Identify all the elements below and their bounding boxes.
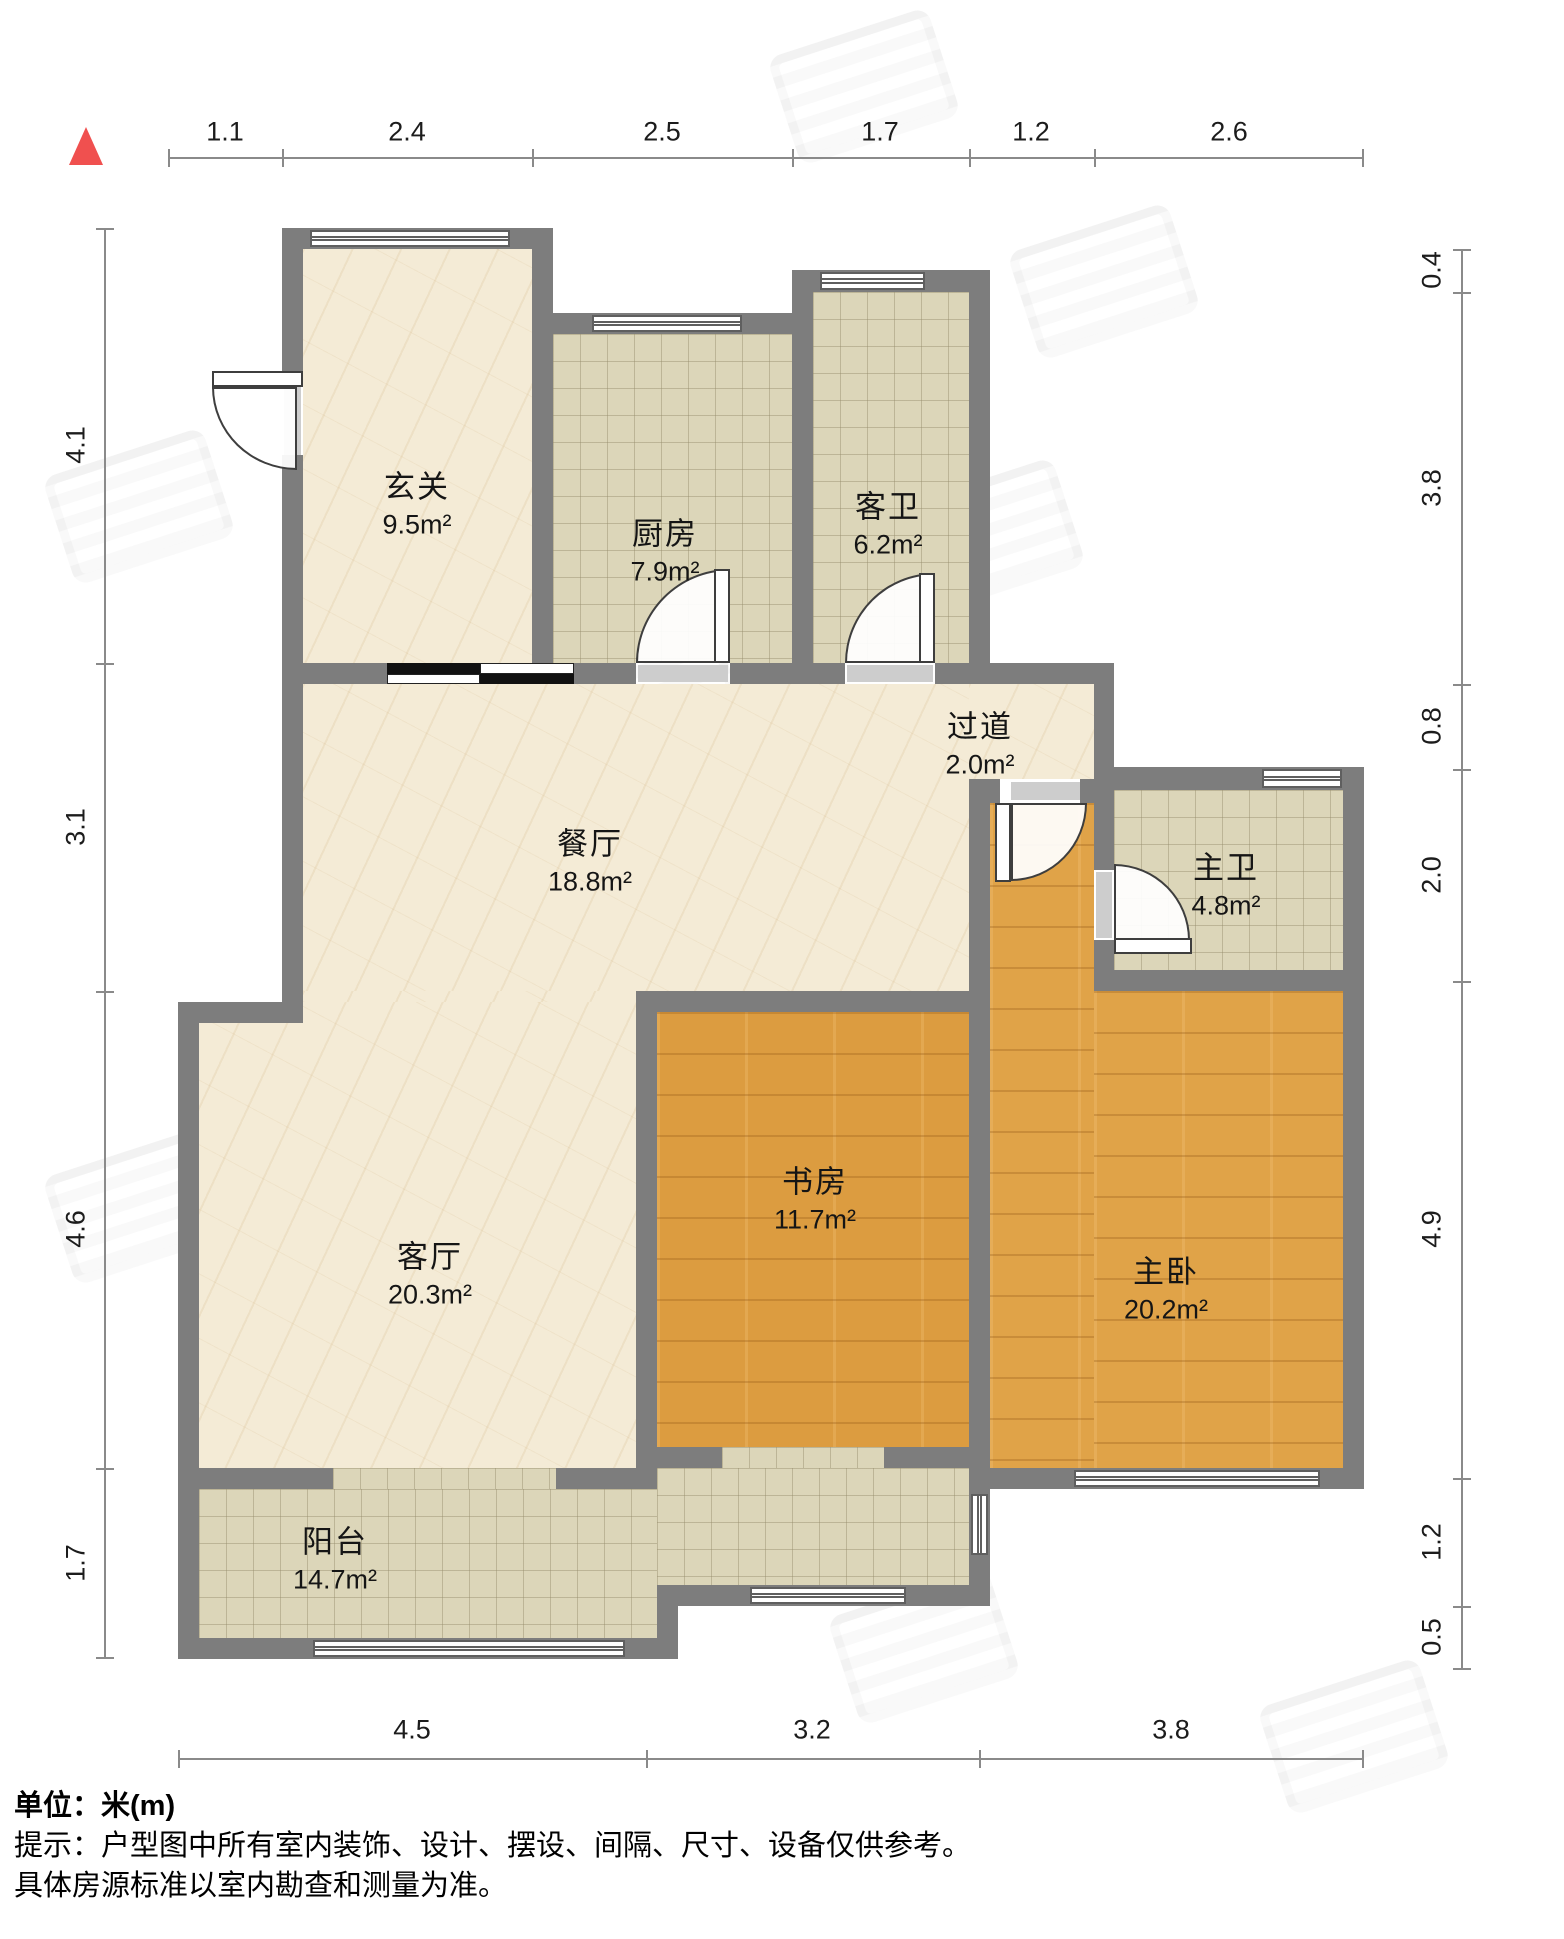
room-name: 主卫 bbox=[1191, 848, 1260, 888]
dim-tick bbox=[1362, 1750, 1364, 1768]
floor-dining bbox=[303, 684, 969, 991]
dim-tick bbox=[646, 1750, 648, 1768]
wall bbox=[532, 228, 553, 663]
room-area: 6.2m² bbox=[853, 528, 922, 563]
room-label-guest-bath: 客卫 6.2m² bbox=[853, 487, 922, 562]
dim-line-bottom bbox=[178, 1758, 1364, 1760]
floor-entrance bbox=[303, 249, 532, 663]
sliding-door-icon bbox=[387, 674, 480, 684]
dim-tick bbox=[1453, 769, 1471, 771]
watermark bbox=[1257, 1657, 1452, 1816]
door-threshold bbox=[638, 665, 728, 682]
entry-door-swing-icon bbox=[212, 387, 297, 470]
dim-label-top: 1.1 bbox=[206, 117, 244, 148]
wall bbox=[935, 663, 1114, 684]
watermark bbox=[1007, 202, 1202, 361]
kitchen-door-leaf bbox=[714, 569, 730, 663]
dim-label-left: 1.7 bbox=[61, 1544, 92, 1582]
room-area: 11.7m² bbox=[774, 1203, 856, 1238]
floor-balcony-extension bbox=[722, 1447, 884, 1468]
room-name: 厨房 bbox=[630, 514, 699, 554]
wall bbox=[1343, 767, 1364, 1489]
room-area: 18.8m² bbox=[548, 865, 632, 900]
wall bbox=[282, 228, 303, 385]
dim-label-left: 4.1 bbox=[61, 426, 92, 464]
sliding-door-icon bbox=[387, 663, 480, 674]
room-name: 过道 bbox=[945, 707, 1014, 747]
room-label-master-bedroom: 主卧 20.2m² bbox=[1124, 1252, 1208, 1327]
dim-tick bbox=[168, 149, 170, 167]
dim-line-right bbox=[1461, 249, 1463, 1670]
floor-master-bedroom bbox=[1094, 991, 1343, 1468]
dim-tick bbox=[282, 149, 284, 167]
wall bbox=[178, 1002, 199, 1659]
window bbox=[310, 230, 510, 247]
dim-label-right: 3.8 bbox=[1417, 469, 1448, 507]
dim-tick bbox=[1453, 684, 1471, 686]
master-bath-door-leaf bbox=[1114, 938, 1192, 954]
dim-tick bbox=[96, 991, 114, 993]
wall bbox=[636, 1012, 657, 1447]
room-label-kitchen: 厨房 7.9m² bbox=[630, 514, 699, 589]
dim-tick bbox=[1453, 249, 1471, 251]
wall bbox=[792, 292, 813, 663]
footer-unit: 单位：米(m) bbox=[14, 1782, 175, 1824]
wall bbox=[969, 803, 990, 1468]
window bbox=[971, 1494, 988, 1555]
room-label-study: 书房 11.7m² bbox=[774, 1162, 856, 1237]
wall bbox=[282, 663, 387, 684]
dim-tick bbox=[1453, 1606, 1471, 1608]
dim-tick bbox=[96, 1468, 114, 1470]
floor-living bbox=[199, 1002, 636, 1468]
dim-tick bbox=[1362, 149, 1364, 167]
wall bbox=[556, 1468, 657, 1489]
dim-label-bottom: 4.5 bbox=[393, 1715, 431, 1746]
room-area: 20.2m² bbox=[1124, 1293, 1208, 1328]
dim-tick bbox=[1094, 149, 1096, 167]
room-name: 客厅 bbox=[388, 1237, 472, 1277]
wall bbox=[969, 270, 990, 684]
floor-master-bedroom bbox=[990, 803, 1094, 1468]
dim-tick bbox=[96, 663, 114, 665]
dim-tick bbox=[969, 149, 971, 167]
dim-label-left: 3.1 bbox=[61, 808, 92, 846]
footer-hint2: 具体房源标准以室内勘查和测量为准。 bbox=[14, 1862, 507, 1904]
room-name: 餐厅 bbox=[548, 824, 632, 864]
wall bbox=[574, 663, 636, 684]
room-label-hallway: 过道 2.0m² bbox=[945, 707, 1014, 782]
room-area: 4.8m² bbox=[1191, 889, 1260, 924]
sliding-door-icon bbox=[480, 663, 574, 674]
floor-balcony bbox=[199, 1489, 657, 1638]
dim-label-right: 2.0 bbox=[1417, 856, 1448, 894]
door-threshold bbox=[847, 665, 933, 682]
wall bbox=[1094, 790, 1114, 870]
wall bbox=[636, 1447, 722, 1468]
window bbox=[313, 1640, 625, 1657]
room-label-master-bath: 主卫 4.8m² bbox=[1191, 848, 1260, 923]
dim-label-top: 2.4 bbox=[388, 117, 426, 148]
room-label-living: 客厅 20.3m² bbox=[388, 1237, 472, 1312]
guest-bath-door-leaf bbox=[919, 573, 935, 663]
dim-tick bbox=[1453, 1478, 1471, 1480]
window bbox=[820, 272, 925, 290]
door-threshold bbox=[1096, 872, 1112, 938]
dim-label-right: 0.8 bbox=[1417, 707, 1448, 745]
wall bbox=[282, 684, 303, 1002]
room-label-dining: 餐厅 18.8m² bbox=[548, 824, 632, 899]
room-label-entrance: 玄关 9.5m² bbox=[382, 467, 451, 542]
dim-tick bbox=[1453, 292, 1471, 294]
dim-label-top: 2.5 bbox=[643, 117, 681, 148]
floor-plan: 玄关 9.5m² 厨房 7.9m² 客卫 6.2m² 过道 2.0m² 餐厅 1… bbox=[0, 0, 1564, 1939]
dim-tick bbox=[178, 1750, 180, 1768]
floor-balcony-opening bbox=[333, 1468, 556, 1489]
dim-line-left bbox=[104, 228, 106, 1659]
room-area: 7.9m² bbox=[630, 555, 699, 590]
wall bbox=[884, 1447, 990, 1468]
dim-label-right: 4.9 bbox=[1417, 1210, 1448, 1248]
window bbox=[592, 315, 742, 332]
room-area: 9.5m² bbox=[382, 508, 451, 543]
room-name: 书房 bbox=[774, 1162, 856, 1202]
wall bbox=[1094, 940, 1114, 970]
entry-door-leaf bbox=[212, 371, 303, 387]
dim-label-right: 1.2 bbox=[1417, 1523, 1448, 1561]
dim-tick bbox=[532, 149, 534, 167]
window bbox=[750, 1587, 906, 1604]
room-area: 14.7m² bbox=[293, 1563, 377, 1598]
floor-balcony-extension bbox=[657, 1468, 969, 1585]
dim-tick bbox=[1453, 981, 1471, 983]
dim-label-bottom: 3.2 bbox=[793, 1715, 831, 1746]
dim-tick bbox=[96, 1657, 114, 1659]
wall bbox=[636, 991, 990, 1012]
room-name: 客卫 bbox=[853, 487, 922, 527]
dim-tick bbox=[979, 1750, 981, 1768]
north-arrow-icon bbox=[69, 127, 103, 165]
room-name: 玄关 bbox=[382, 467, 451, 507]
dim-tick bbox=[1453, 1668, 1471, 1670]
room-name: 阳台 bbox=[293, 1522, 377, 1562]
wall bbox=[730, 663, 845, 684]
dim-label-top: 2.6 bbox=[1210, 117, 1248, 148]
dim-label-bottom: 3.8 bbox=[1152, 1715, 1190, 1746]
room-area: 20.3m² bbox=[388, 1278, 472, 1313]
dim-label-right: 0.4 bbox=[1417, 251, 1448, 289]
sliding-door-icon bbox=[480, 674, 574, 684]
dim-tick bbox=[96, 228, 114, 230]
dim-label-left: 4.6 bbox=[61, 1210, 92, 1248]
floor-dining-living-join bbox=[303, 991, 636, 1002]
room-area: 2.0m² bbox=[945, 748, 1014, 783]
wall bbox=[1094, 970, 1343, 991]
window bbox=[1262, 769, 1342, 788]
footer-hint1: 提示：户型图中所有室内装饰、设计、摆设、间隔、尺寸、设备仅供参考。 bbox=[14, 1822, 971, 1864]
bedroom-door-leaf bbox=[995, 803, 1011, 882]
wall bbox=[282, 455, 303, 684]
room-name: 主卧 bbox=[1124, 1252, 1208, 1292]
wall bbox=[199, 1468, 333, 1489]
room-label-balcony: 阳台 14.7m² bbox=[293, 1522, 377, 1597]
door-threshold bbox=[1011, 782, 1080, 800]
dim-label-top: 1.2 bbox=[1012, 117, 1050, 148]
window bbox=[1074, 1470, 1320, 1487]
dim-line-top bbox=[168, 157, 1364, 159]
dim-label-right: 0.5 bbox=[1417, 1618, 1448, 1656]
dim-tick bbox=[792, 149, 794, 167]
dim-label-top: 1.7 bbox=[861, 117, 899, 148]
wall bbox=[1080, 779, 1094, 803]
